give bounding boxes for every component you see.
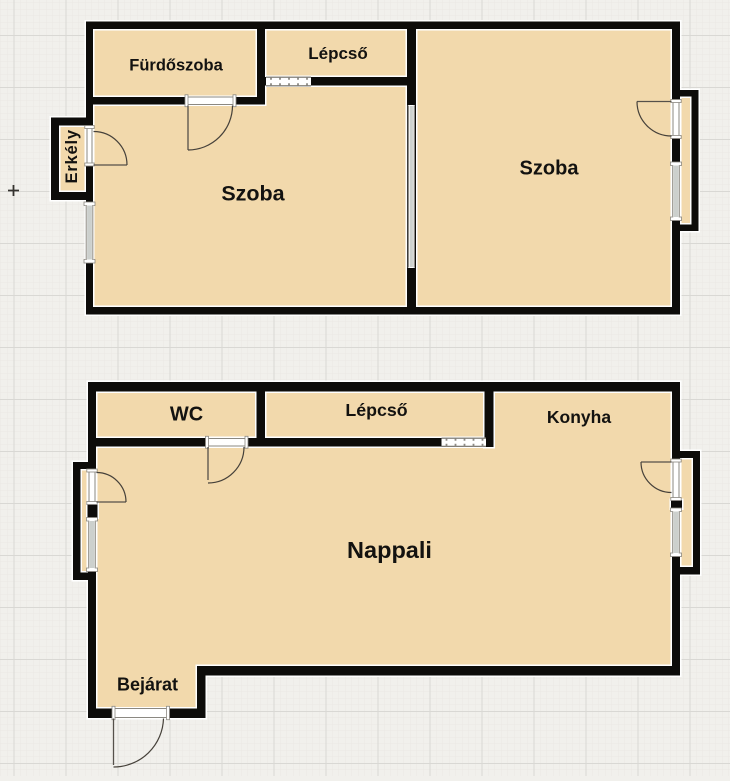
- svg-text:Nappali: Nappali: [347, 537, 432, 563]
- svg-text:Konyha: Konyha: [547, 407, 611, 427]
- svg-text:Szoba: Szoba: [520, 158, 580, 180]
- svg-text:Erkély: Erkély: [63, 129, 81, 183]
- svg-text:Fürdőszoba: Fürdőszoba: [129, 57, 223, 75]
- svg-text:Bejárat: Bejárat: [117, 675, 178, 695]
- svg-text:Lépcső: Lépcső: [308, 44, 368, 63]
- svg-text:Szoba: Szoba: [221, 182, 285, 206]
- svg-text:Lépcső: Lépcső: [345, 400, 407, 420]
- svg-text:WC: WC: [170, 404, 203, 426]
